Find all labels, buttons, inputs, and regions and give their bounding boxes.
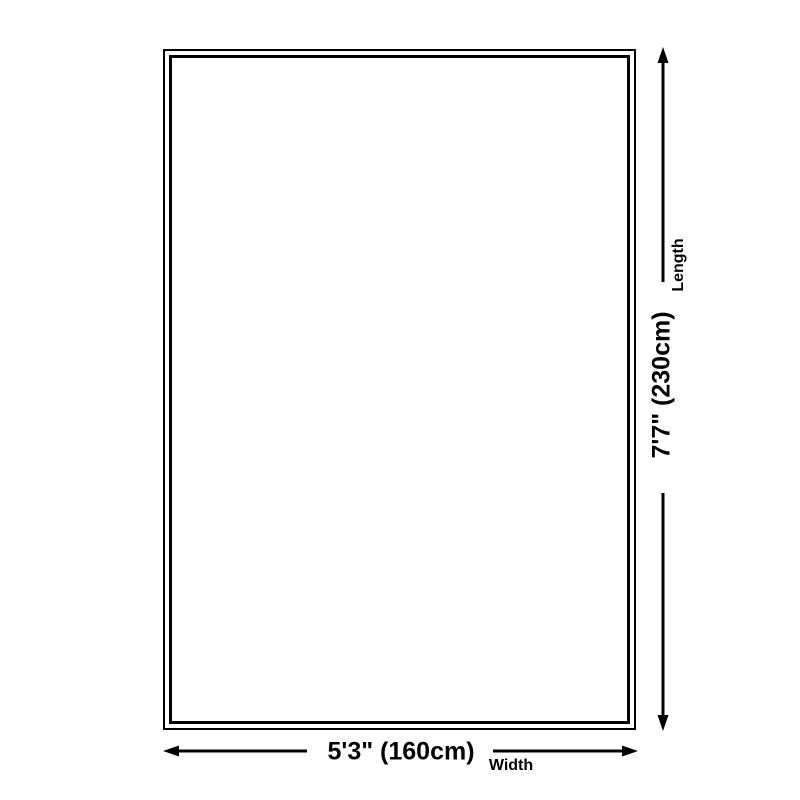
- dimension-diagram: 7'7" (230cm) Length 5'3" (160cm) Width: [0, 0, 800, 800]
- length-label: Length: [671, 238, 687, 291]
- length-value: 7'7" (230cm): [650, 311, 675, 458]
- rug-inner-border: [169, 55, 630, 724]
- width-value: 5'3" (160cm): [327, 740, 474, 765]
- width-label: Width: [489, 758, 533, 774]
- rug-outline: [163, 49, 636, 730]
